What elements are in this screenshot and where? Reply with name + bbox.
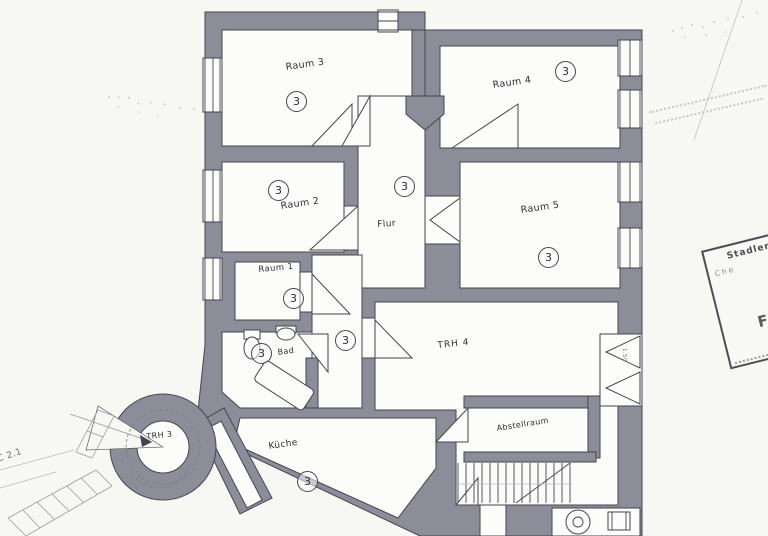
floor-plan-drawing (0, 0, 768, 536)
hallway-lower (312, 255, 362, 408)
floor-badge: 3 (538, 247, 559, 268)
stamp-smudge-line (735, 326, 768, 364)
floor-badge: 3 (251, 343, 272, 364)
small-fixture-icon (608, 512, 630, 530)
stamp-line2: Che (714, 264, 736, 278)
floor-badge: 3 (394, 176, 415, 197)
round-fixture-icon (566, 510, 590, 534)
floor-badge: 3 (286, 91, 307, 112)
scanned-floor-plan-page: Raum 3 Raum 4 Raum 2 Flur Raum 5 Raum 1 … (0, 0, 768, 536)
room-raum5 (460, 162, 620, 288)
floor-badge: 3 (297, 471, 318, 492)
floor-badge: 3 (268, 180, 289, 201)
room-raum4 (440, 46, 620, 148)
bottom-wall-opening (480, 505, 506, 536)
scan-specks (672, 30, 674, 32)
floor-badge: 3 (555, 61, 576, 82)
stamp-line1: Stadler (726, 241, 768, 261)
stamp-line4: FE (756, 308, 768, 331)
sink-bowl-icon (277, 328, 295, 340)
door-width-label: 1.50 (621, 348, 627, 362)
floor-badge: 3 (283, 288, 304, 309)
floor-badge: 3 (335, 330, 356, 351)
room-label-flur: Flur (377, 219, 396, 230)
